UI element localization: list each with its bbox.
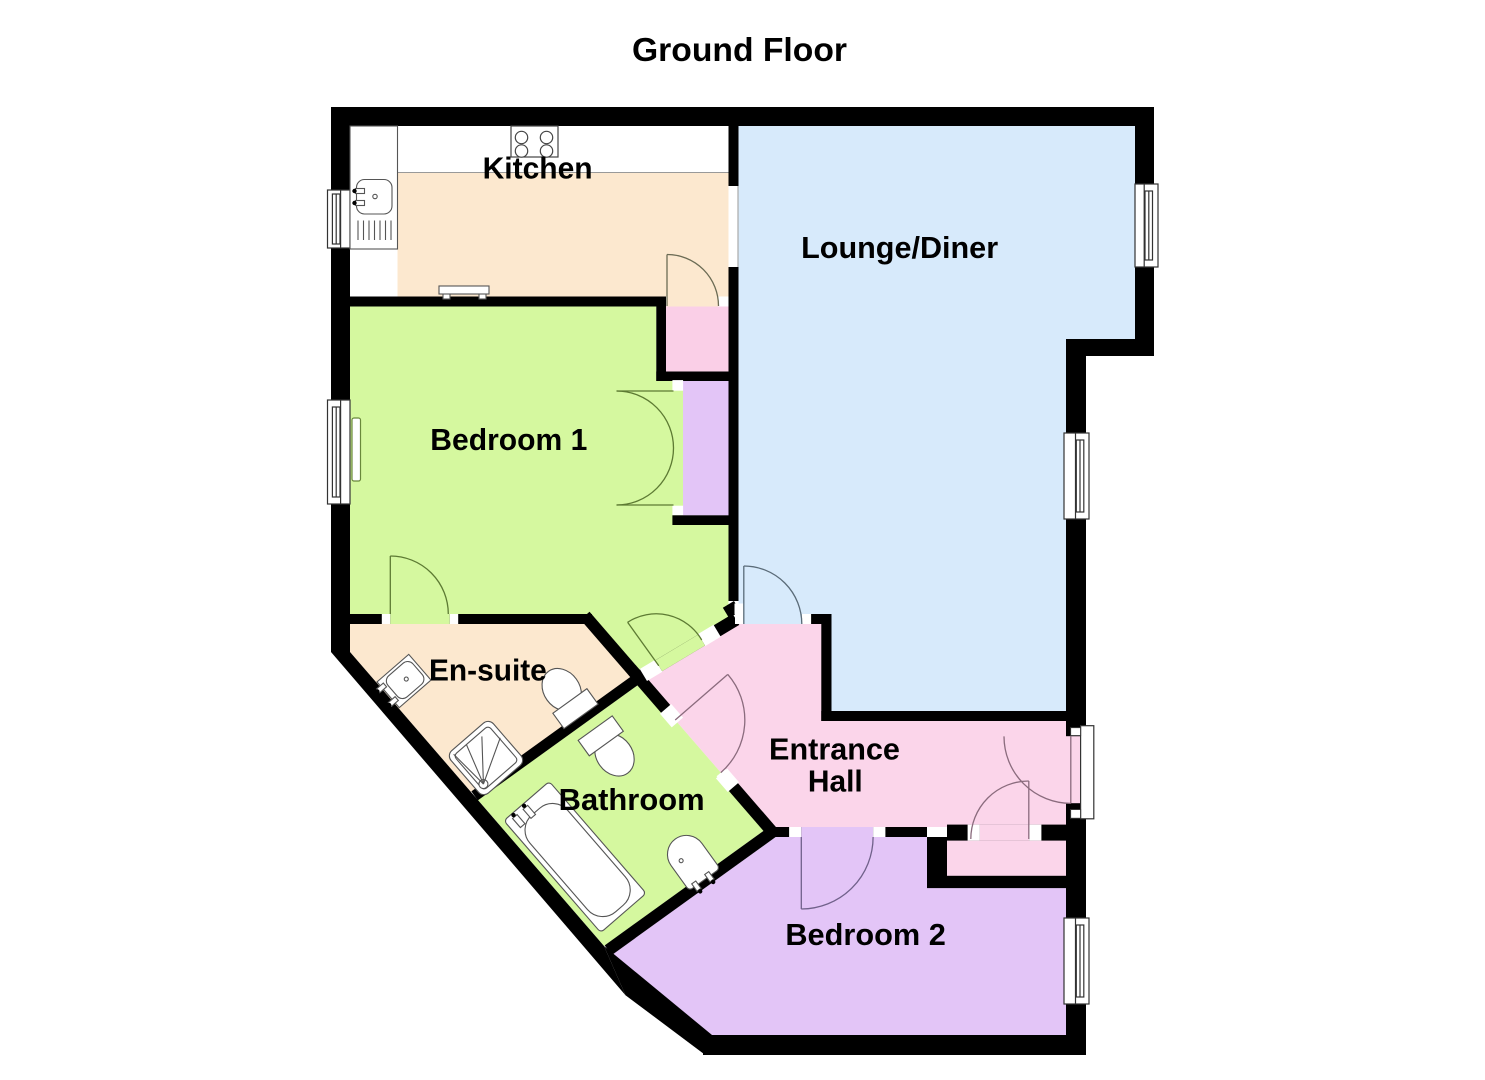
svg-text:Bedroom 1: Bedroom 1	[430, 423, 587, 457]
svg-text:Lounge/Diner: Lounge/Diner	[801, 231, 998, 265]
svg-text:En-suite: En-suite	[429, 653, 547, 687]
svg-text:Entrance: Entrance	[769, 733, 900, 767]
svg-text:Bathroom: Bathroom	[559, 783, 705, 817]
svg-text:Ground Floor: Ground Floor	[632, 32, 847, 69]
svg-text:Kitchen: Kitchen	[483, 152, 593, 186]
svg-text:Hall: Hall	[808, 764, 863, 798]
svg-text:Bedroom 2: Bedroom 2	[785, 918, 946, 952]
